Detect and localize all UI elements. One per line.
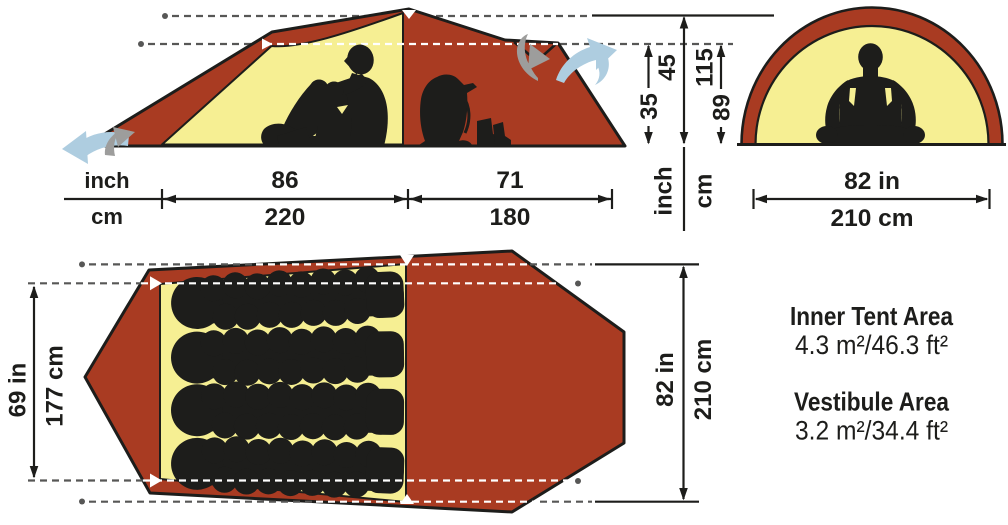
svg-text:82 in: 82 in [844,168,900,195]
svg-text:210 cm: 210 cm [690,339,717,420]
svg-text:89: 89 [709,94,736,121]
svg-text:Inner Tent Area: Inner Tent Area [790,301,953,331]
svg-text:220: 220 [265,204,306,231]
svg-text:4.3 m²/46.3 ft²: 4.3 m²/46.3 ft² [795,330,948,360]
svg-text:86: 86 [271,167,298,194]
svg-text:69 in: 69 in [5,363,32,418]
svg-text:45: 45 [654,54,681,81]
svg-text:82 in: 82 in [652,352,679,407]
svg-text:3.2 m²/34.4 ft²: 3.2 m²/34.4 ft² [795,416,948,446]
svg-text:cm: cm [91,204,123,229]
svg-text:180: 180 [490,204,531,231]
svg-text:Vestibule Area: Vestibule Area [794,387,949,417]
svg-text:cm: cm [691,174,718,209]
svg-text:71: 71 [496,167,523,194]
svg-text:210 cm: 210 cm [830,205,913,232]
svg-text:177 cm: 177 cm [42,345,69,426]
svg-text:inch: inch [651,166,678,215]
svg-text:inch: inch [84,168,129,193]
svg-text:35: 35 [636,93,663,120]
svg-text:115: 115 [692,48,719,87]
